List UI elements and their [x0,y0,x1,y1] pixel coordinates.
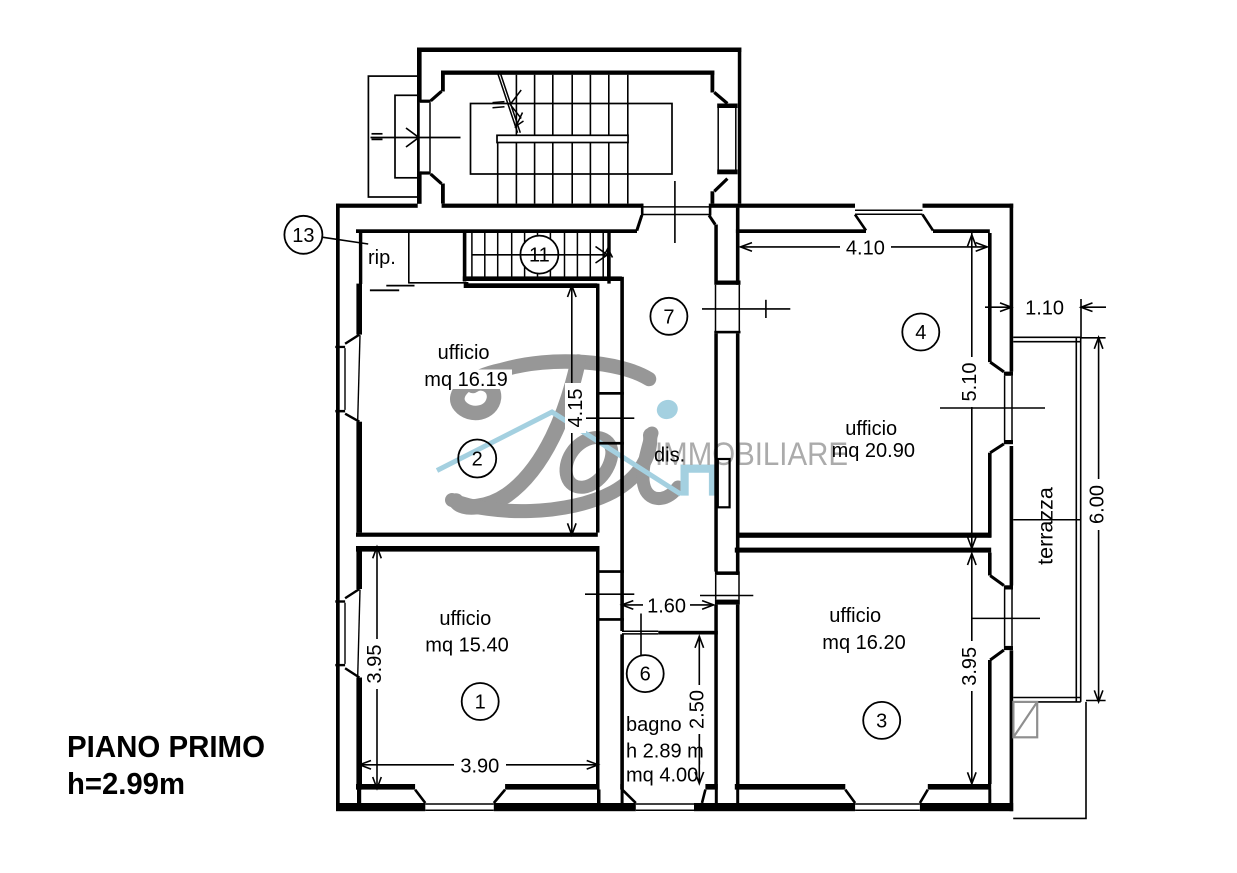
svg-text:3.90: 3.90 [460,755,499,777]
svg-text:h 2.89 m: h 2.89 m [626,741,704,763]
svg-text:1.60: 1.60 [647,595,686,617]
svg-text:6.00: 6.00 [1087,485,1109,524]
svg-text:mq 15.40: mq 15.40 [425,635,508,657]
svg-text:ufficio: ufficio [829,605,881,627]
svg-text:mq 20.90: mq 20.90 [832,440,915,462]
svg-text:4: 4 [915,322,926,344]
svg-text:3.95: 3.95 [959,647,981,686]
svg-text:PIANO PRIMO: PIANO PRIMO [67,729,265,764]
svg-text:ufficio: ufficio [439,608,491,630]
svg-text:1: 1 [475,692,486,714]
svg-text:4.10: 4.10 [846,238,885,260]
svg-text:5.10: 5.10 [959,363,981,402]
svg-text:13: 13 [292,225,314,247]
svg-text:7: 7 [663,306,674,328]
svg-text:rip.: rip. [368,247,396,269]
svg-text:mq 4.00: mq 4.00 [626,765,698,787]
svg-text:2.50: 2.50 [686,690,708,729]
svg-text:4.15: 4.15 [565,389,587,428]
svg-text:h=2.99m: h=2.99m [67,766,185,801]
svg-text:6: 6 [640,664,651,686]
svg-text:bagno: bagno [626,714,682,736]
svg-text:3.95: 3.95 [364,645,386,684]
svg-text:1.10: 1.10 [1025,298,1064,320]
svg-text:terrazza: terrazza [1034,487,1058,565]
svg-text:ufficio: ufficio [845,418,897,440]
svg-text:ufficio: ufficio [438,342,490,364]
svg-text:dis.: dis. [654,445,685,467]
svg-text:3: 3 [876,710,887,732]
svg-text:mq 16.19: mq 16.19 [424,369,507,391]
svg-text:mq 16.20: mq 16.20 [822,632,905,654]
